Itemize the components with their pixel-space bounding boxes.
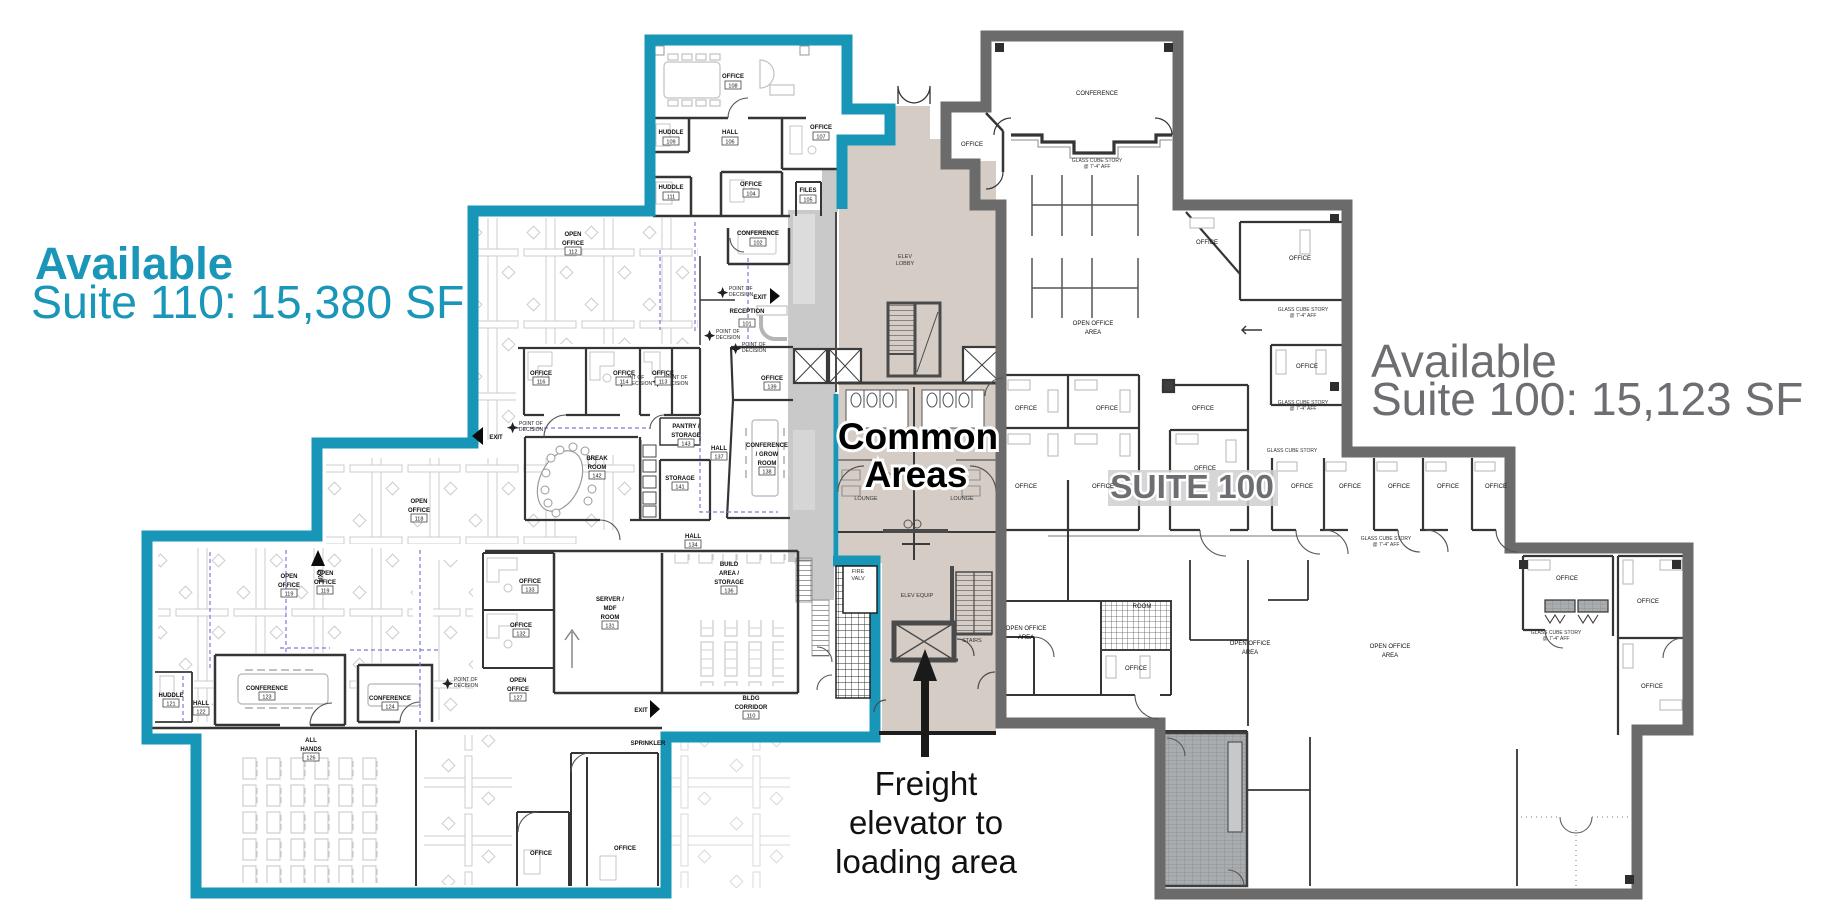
svg-text:OFFICE: OFFICE xyxy=(562,241,584,247)
svg-text:CONFERENCE: CONFERENCE xyxy=(737,231,779,237)
svg-text:SPRINKLER: SPRINKLER xyxy=(631,741,666,747)
svg-text:GLASS CUBE STORY: GLASS CUBE STORY xyxy=(1267,448,1318,454)
svg-text:Common: Common xyxy=(838,416,998,457)
svg-text:STORAGE: STORAGE xyxy=(714,580,744,586)
svg-text:OPEN OFFICE: OPEN OFFICE xyxy=(1230,641,1271,647)
svg-text:OFFICE: OFFICE xyxy=(614,846,636,852)
svg-text:AREA: AREA xyxy=(1382,653,1398,659)
svg-text:HALL: HALL xyxy=(193,701,209,707)
svg-text:108: 108 xyxy=(728,84,737,90)
svg-text:107: 107 xyxy=(816,135,825,141)
svg-text:EXIT: EXIT xyxy=(753,295,767,301)
svg-text:OFFICE: OFFICE xyxy=(1196,240,1218,246)
svg-text:OFFICE: OFFICE xyxy=(1289,256,1311,262)
svg-text:ELEV EQUIP: ELEV EQUIP xyxy=(901,593,934,599)
svg-text:OFFICE: OFFICE xyxy=(408,508,430,514)
svg-text:OPEN: OPEN xyxy=(509,678,526,684)
svg-text:OFFICE: OFFICE xyxy=(810,125,832,131)
svg-text:OFFICE: OFFICE xyxy=(1641,684,1663,690)
svg-text:LOUNGE: LOUNGE xyxy=(950,496,974,502)
svg-text:OFFICE: OFFICE xyxy=(530,851,552,857)
svg-text:OFFICE: OFFICE xyxy=(961,142,983,148)
svg-text:HANDS: HANDS xyxy=(300,747,321,753)
svg-text:OFFICE: OFFICE xyxy=(510,623,532,629)
svg-text:136: 136 xyxy=(724,589,733,595)
svg-text:106: 106 xyxy=(725,140,734,146)
svg-text:LOUNGE: LOUNGE xyxy=(854,496,878,502)
svg-text:DECISION: DECISION xyxy=(454,683,479,689)
svg-text:PANTRY /: PANTRY / xyxy=(672,424,700,430)
svg-text:STORAGE: STORAGE xyxy=(671,433,701,439)
svg-text:127: 127 xyxy=(513,696,522,702)
svg-text:109: 109 xyxy=(666,140,675,146)
svg-text:DECISION: DECISION xyxy=(742,348,767,354)
svg-text:121: 121 xyxy=(166,702,175,708)
svg-text:Areas: Areas xyxy=(865,454,968,495)
svg-text:HUDDLE: HUDDLE xyxy=(659,185,684,191)
svg-text:BREAK: BREAK xyxy=(586,456,608,462)
svg-text:OFFICE: OFFICE xyxy=(519,579,541,585)
svg-text:BLDG: BLDG xyxy=(743,696,760,702)
svg-text:HUDDLE: HUDDLE xyxy=(159,693,184,699)
svg-text:ROOM: ROOM xyxy=(601,615,620,621)
svg-text:OFFICE: OFFICE xyxy=(530,371,552,377)
svg-text:elevator to: elevator to xyxy=(849,804,1003,841)
svg-text:OPEN: OPEN xyxy=(280,574,297,580)
svg-text:113: 113 xyxy=(659,380,668,386)
svg-text:119: 119 xyxy=(321,589,330,595)
svg-text:OFFICE: OFFICE xyxy=(507,687,529,693)
svg-text:MDF: MDF xyxy=(604,606,617,612)
svg-text:OFFICE: OFFICE xyxy=(1092,484,1114,490)
svg-text:OPEN: OPEN xyxy=(564,232,581,238)
svg-text:@ 7'-4" AFF: @ 7'-4" AFF xyxy=(1290,313,1317,319)
svg-text:132: 132 xyxy=(516,632,525,638)
svg-text:SERVER /: SERVER / xyxy=(596,597,624,603)
svg-text:OFFICE: OFFICE xyxy=(1015,484,1037,490)
svg-text:OFFICE: OFFICE xyxy=(314,580,336,586)
svg-text:HALL: HALL xyxy=(722,130,738,136)
svg-text:OPEN OFFICE: OPEN OFFICE xyxy=(1370,644,1411,650)
svg-text:DECISION: DECISION xyxy=(716,335,741,341)
svg-text:ROOM: ROOM xyxy=(588,465,607,471)
svg-text:137: 137 xyxy=(714,455,723,461)
svg-text:OFFICE: OFFICE xyxy=(1125,666,1147,672)
svg-text:VALV: VALV xyxy=(851,576,865,582)
svg-text:OFFICE: OFFICE xyxy=(1192,406,1214,412)
svg-text:loading area: loading area xyxy=(835,843,1017,880)
svg-text:104: 104 xyxy=(746,192,755,198)
svg-text:/ GROW: / GROW xyxy=(756,452,779,458)
svg-text:@ 7'-4" AFF: @ 7'-4" AFF xyxy=(1084,164,1111,170)
svg-text:OFFICE: OFFICE xyxy=(1556,576,1578,582)
svg-text:112: 112 xyxy=(569,250,578,256)
svg-text:142: 142 xyxy=(592,474,601,480)
svg-text:110: 110 xyxy=(747,714,756,720)
svg-text:123: 123 xyxy=(262,695,271,701)
svg-text:CORRIDOR: CORRIDOR xyxy=(735,705,768,711)
svg-text:OFFICE: OFFICE xyxy=(1291,484,1313,490)
svg-text:@ 7'-4" AFF: @ 7'-4" AFF xyxy=(1290,406,1317,412)
svg-text:133: 133 xyxy=(525,588,534,594)
svg-text:105: 105 xyxy=(803,198,812,204)
svg-text:OFFICE: OFFICE xyxy=(761,376,783,382)
svg-text:101: 101 xyxy=(742,322,751,328)
svg-text:AREA: AREA xyxy=(1085,330,1101,336)
svg-text:141: 141 xyxy=(675,485,684,491)
svg-text:Suite 100: 15,123 SF: Suite 100: 15,123 SF xyxy=(1371,373,1803,425)
svg-text:ROOM: ROOM xyxy=(758,461,777,467)
svg-text:CONFERENCE: CONFERENCE xyxy=(369,696,411,702)
svg-text:FIRE: FIRE xyxy=(852,569,865,575)
svg-text:111: 111 xyxy=(667,195,675,201)
svg-text:OFFICE: OFFICE xyxy=(1015,406,1037,412)
svg-text:@ 7'-4" AFF: @ 7'-4" AFF xyxy=(1373,542,1400,548)
svg-text:LOBBY: LOBBY xyxy=(896,261,915,267)
svg-text:OPEN OFFICE: OPEN OFFICE xyxy=(1006,626,1047,632)
svg-text:FILES: FILES xyxy=(799,188,816,194)
svg-text:OFFICE: OFFICE xyxy=(278,583,300,589)
svg-text:119: 119 xyxy=(285,592,294,598)
svg-text:OFFICE: OFFICE xyxy=(1388,484,1410,490)
svg-text:OFFICE: OFFICE xyxy=(1339,484,1361,490)
svg-text:OFFICE: OFFICE xyxy=(740,182,762,188)
svg-text:STAIRS: STAIRS xyxy=(962,638,982,644)
svg-text:BUILD: BUILD xyxy=(720,562,739,568)
svg-text:OFFICE: OFFICE xyxy=(1637,599,1659,605)
svg-text:EXIT: EXIT xyxy=(634,708,648,714)
svg-text:AREA: AREA xyxy=(1242,650,1258,656)
svg-text:139: 139 xyxy=(767,385,776,391)
svg-text:ALL: ALL xyxy=(305,738,317,744)
svg-text:Freight: Freight xyxy=(875,765,978,802)
svg-text:ROOM: ROOM xyxy=(1133,604,1152,610)
svg-text:AREA: AREA xyxy=(1018,635,1034,641)
svg-text:131: 131 xyxy=(605,624,614,630)
svg-text:DECISION: DECISION xyxy=(729,292,754,298)
svg-text:HALL: HALL xyxy=(711,446,727,452)
svg-text:OFFICE: OFFICE xyxy=(613,371,635,377)
svg-text:ELEV: ELEV xyxy=(898,254,912,260)
svg-text:OFFICE: OFFICE xyxy=(1485,484,1507,490)
svg-text:138: 138 xyxy=(762,470,771,476)
svg-text:CONFERENCE: CONFERENCE xyxy=(1076,91,1118,97)
svg-text:CONFERENCE: CONFERENCE xyxy=(246,686,288,692)
svg-text:SUITE 100: SUITE 100 xyxy=(1110,469,1274,506)
svg-text:OPEN: OPEN xyxy=(316,571,333,577)
svg-text:114: 114 xyxy=(620,380,629,386)
svg-text:RECEPTION: RECEPTION xyxy=(729,309,764,315)
svg-text:102: 102 xyxy=(753,241,762,247)
svg-text:HUDDLE: HUDDLE xyxy=(659,130,684,136)
svg-text:OFFICE: OFFICE xyxy=(1437,484,1459,490)
svg-text:STORAGE: STORAGE xyxy=(665,476,695,482)
svg-text:OFFICE: OFFICE xyxy=(1194,466,1216,472)
svg-text:CONFERENCE: CONFERENCE xyxy=(746,443,788,449)
svg-text:122: 122 xyxy=(196,710,205,716)
svg-text:DECISION: DECISION xyxy=(519,427,544,433)
svg-text:HALL: HALL xyxy=(685,534,701,540)
svg-text:OFFICE: OFFICE xyxy=(1096,406,1118,412)
svg-text:OFFICE: OFFICE xyxy=(652,371,674,377)
svg-text:124: 124 xyxy=(385,705,394,711)
svg-text:126: 126 xyxy=(306,756,315,762)
svg-text:OPEN OFFICE: OPEN OFFICE xyxy=(1073,321,1114,327)
svg-text:143: 143 xyxy=(681,442,690,448)
svg-text:AREA /: AREA / xyxy=(719,571,739,577)
svg-text:OPEN: OPEN xyxy=(410,499,427,505)
svg-text:OFFICE: OFFICE xyxy=(722,74,744,80)
svg-text:OFFICE: OFFICE xyxy=(1296,364,1318,370)
svg-text:118: 118 xyxy=(415,517,424,523)
svg-text:@ 7'-4" AFF: @ 7'-4" AFF xyxy=(1543,636,1570,642)
svg-text:116: 116 xyxy=(537,380,546,386)
svg-text:Suite 110: 15,380 SF: Suite 110: 15,380 SF xyxy=(31,276,464,328)
svg-text:EXIT: EXIT xyxy=(489,435,503,441)
svg-text:134: 134 xyxy=(688,543,697,549)
